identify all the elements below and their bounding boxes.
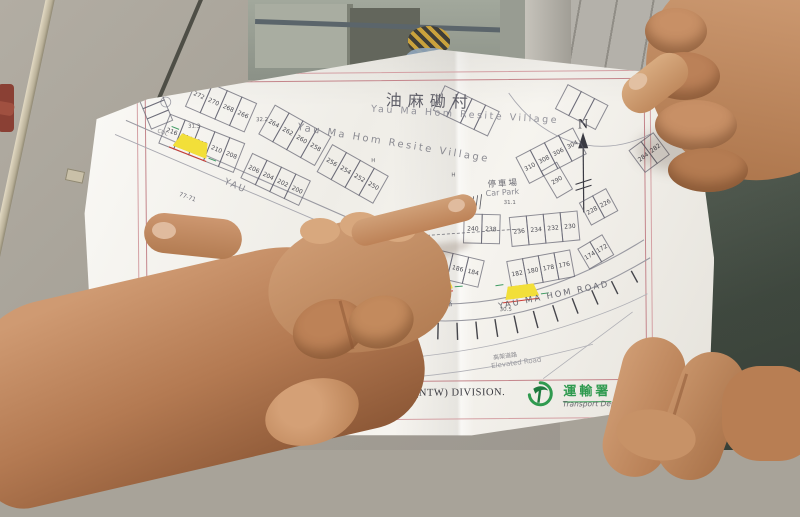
house-cell: 230 (560, 210, 581, 242)
curled-finger (645, 8, 707, 54)
house-cell: 238 (481, 214, 501, 244)
curled-finger (655, 100, 737, 150)
spot-label: 31.3 (188, 124, 200, 130)
spot-label: 32.2 (256, 117, 268, 123)
transport-department-logo-icon (525, 379, 555, 409)
knuckle (300, 218, 340, 244)
curled-finger (668, 148, 748, 192)
spot-label: H (451, 172, 455, 178)
concrete-structure (255, 4, 353, 68)
bottom-right-palm (722, 366, 800, 461)
red-valve-knob (0, 101, 15, 117)
grey-pillar (525, 0, 571, 70)
spot-label: 31.1 (504, 200, 516, 206)
spot-label: H (371, 158, 375, 164)
